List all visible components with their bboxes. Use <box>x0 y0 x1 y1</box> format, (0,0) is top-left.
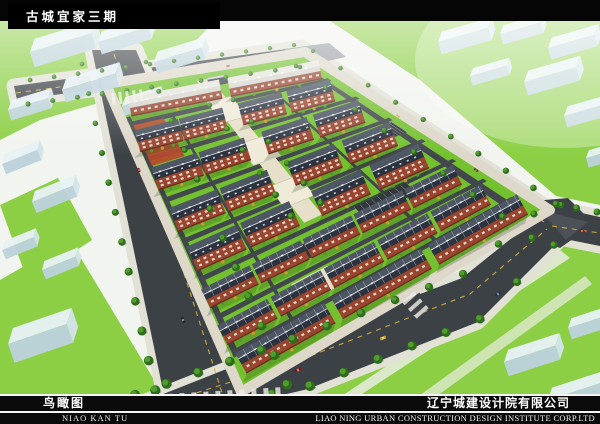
view-label-cn: 鸟瞰图 <box>43 396 85 411</box>
footer-bar-cn: 鸟瞰图 辽宁城建设计院有限公司 <box>0 396 600 411</box>
footer-bar-en: NIAO KAN TU LIAO NING URBAN CONSTRUCTION… <box>0 413 600 424</box>
blueprint-page: 古城宜家三期 鸟瞰图 辽宁城建设计院有限公司 NIAO KAN TU LIAO … <box>0 0 600 424</box>
aerial-rendering <box>0 0 600 424</box>
project-title-banner: 古城宜家三期 <box>8 3 220 29</box>
view-label-en: NIAO KAN TU <box>62 413 128 424</box>
company-name-cn: 辽宁城建设计院有限公司 <box>427 396 570 411</box>
company-name-en: LIAO NING URBAN CONSTRUCTION DESIGN INST… <box>315 413 595 424</box>
project-title: 古城宜家三期 <box>26 9 119 24</box>
